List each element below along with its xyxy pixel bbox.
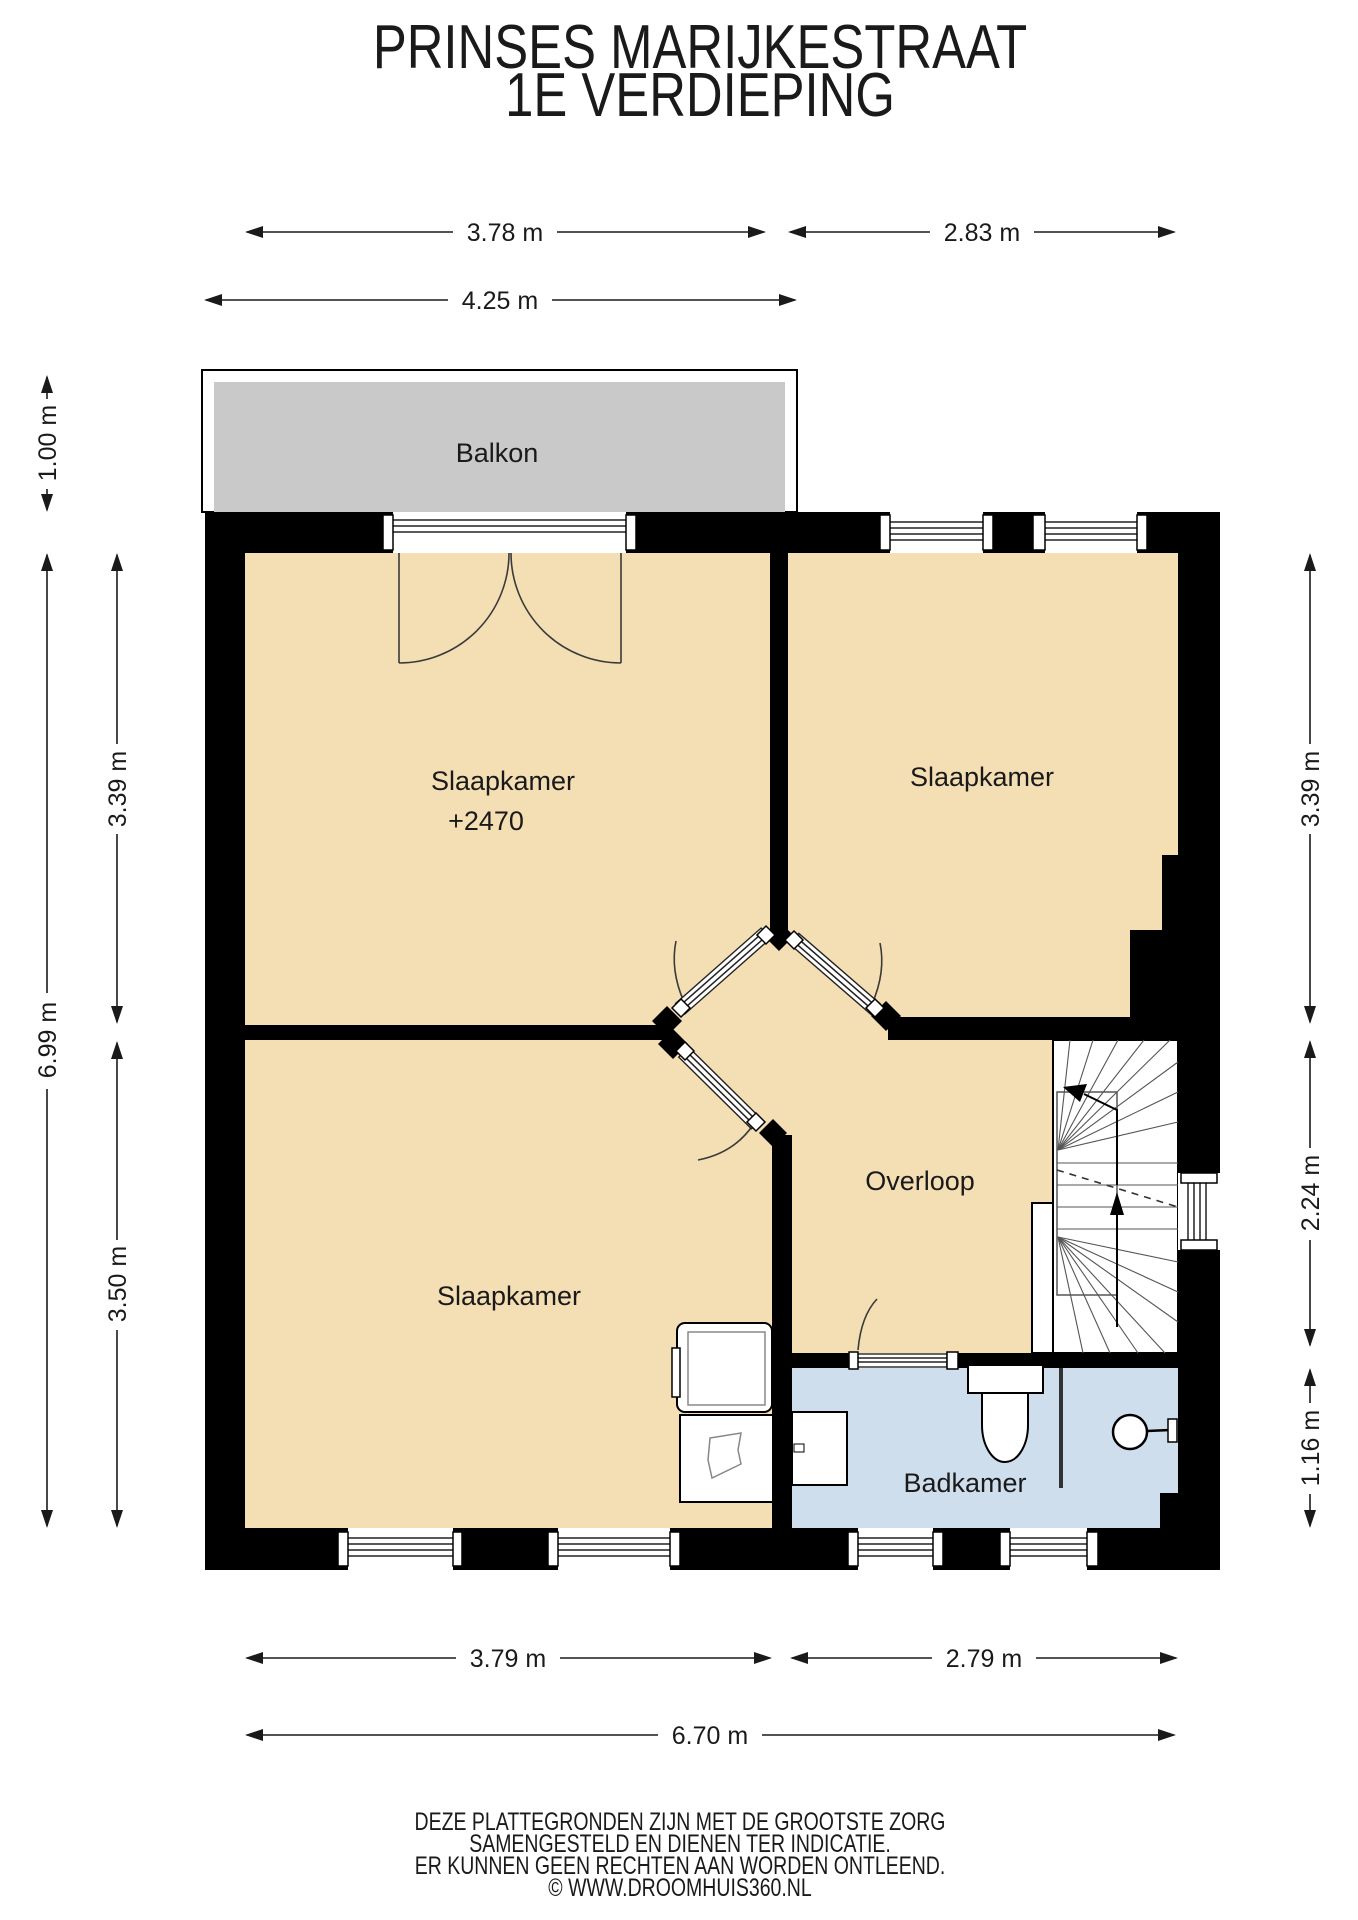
wall-bedroom-tr-south <box>888 1017 1130 1040</box>
dim-bottom-left-label: 3.79 m <box>470 1645 546 1673</box>
dim-right-lower: 1.16 m <box>1297 1368 1325 1528</box>
balcony-label: Balkon <box>456 438 539 468</box>
dim-top-right: 2.83 m <box>788 219 1176 247</box>
dim-balcony-depth-label: 1.00 m <box>34 405 62 481</box>
washing-machine <box>672 1323 772 1412</box>
dim-right-upper: 3.39 m <box>1297 553 1325 1024</box>
dim-balcony-width-label: 4.25 m <box>462 287 538 315</box>
dim-right-upper-label: 3.39 m <box>1297 751 1325 827</box>
wall-bedroom-bl-east <box>772 1135 792 1528</box>
dim-bottom-right-label: 2.79 m <box>946 1645 1022 1673</box>
floorplan-drawing: PRINSES MARIJKESTRAAT 1E VERDIEPING Balk… <box>0 0 1358 1920</box>
bedroom-tl-label: Slaapkamer <box>431 766 575 796</box>
wall-bedroom-tl-south <box>245 1025 668 1040</box>
window-bottom-2 <box>548 1528 680 1570</box>
title-line-2: 1E VERDIEPING <box>505 61 895 130</box>
dim-top-left: 3.78 m <box>245 219 766 247</box>
wall-chimney-upper <box>1162 855 1178 930</box>
dim-left-upper-label: 3.39 m <box>104 751 132 827</box>
wall-left <box>205 512 245 1570</box>
wall-right <box>1178 512 1220 1570</box>
window-top-2 <box>1033 512 1147 553</box>
dim-top-right-label: 2.83 m <box>944 219 1020 247</box>
floorplan-page: PRINSES MARIJKESTRAAT 1E VERDIEPING Balk… <box>0 0 1358 1920</box>
dim-left-total-label: 6.99 m <box>34 1002 62 1078</box>
dim-left-lower: 3.50 m <box>104 1041 132 1528</box>
window-right <box>1178 1173 1220 1250</box>
wall-bathroom-se-step <box>1160 1493 1178 1528</box>
wall-chimney-lower <box>1130 930 1178 1040</box>
bedroom-tr-label: Slaapkamer <box>910 762 1054 792</box>
wall-bedroom-divider <box>770 553 788 933</box>
dim-left-lower-label: 3.50 m <box>104 1246 132 1322</box>
washbasin <box>792 1412 847 1485</box>
window-bottom-1 <box>338 1528 462 1570</box>
dim-left-upper: 3.39 m <box>104 553 132 1024</box>
bathroom-label: Badkamer <box>903 1468 1026 1498</box>
footer-disclaimer: DEZE PLATTEGRONDEN ZIJN MET DE GROOTSTE … <box>415 1808 946 1902</box>
dim-right-lower-label: 1.16 m <box>1297 1410 1325 1486</box>
window-bottom-4 <box>1000 1528 1098 1570</box>
bedroom-tl-level-label: +2470 <box>448 806 524 836</box>
balcony-door-opening <box>383 512 636 553</box>
dim-balcony-depth: 1.00 m <box>34 375 62 512</box>
cabinet <box>680 1415 773 1502</box>
bedroom-bl-label: Slaapkamer <box>437 1281 581 1311</box>
balcony: Balkon <box>202 370 797 512</box>
dim-right-middle: 2.24 m <box>1297 1040 1325 1347</box>
dim-right-middle-label: 2.24 m <box>1297 1155 1325 1231</box>
dim-left-total: 6.99 m <box>34 553 62 1528</box>
dim-top-left-label: 3.78 m <box>467 219 543 247</box>
window-bottom-3 <box>848 1528 943 1570</box>
dim-balcony-width: 4.25 m <box>204 287 797 315</box>
shower-head-icon <box>1113 1415 1147 1449</box>
landing-label: Overloop <box>865 1166 975 1196</box>
window-top-1 <box>880 512 993 553</box>
dim-bottom-total-label: 6.70 m <box>672 1722 748 1750</box>
dim-bottom-right: 2.79 m <box>790 1645 1178 1673</box>
footer-line-4: © WWW.DROOMHUIS360.NL <box>548 1874 811 1902</box>
page-title: PRINSES MARIJKESTRAAT 1E VERDIEPING <box>373 13 1027 130</box>
stair-landing-strip <box>1032 1203 1053 1353</box>
dim-bottom-total: 6.70 m <box>245 1722 1176 1750</box>
dim-bottom-left: 3.79 m <box>245 1645 772 1673</box>
